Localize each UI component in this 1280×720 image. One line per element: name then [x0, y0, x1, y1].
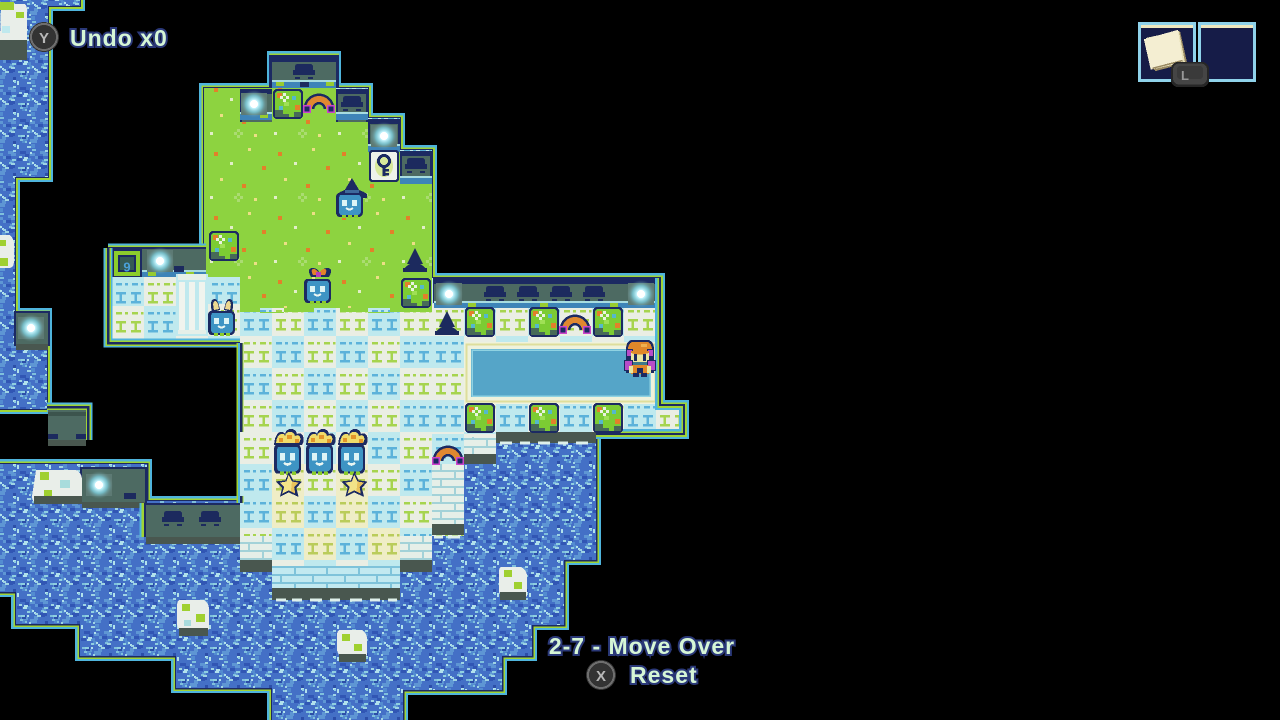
svg-text:2-7 - Move Over: 2-7 - Move Over: [549, 633, 735, 659]
svg-text:9: 9: [123, 259, 130, 274]
svg-text:X: X: [596, 668, 606, 685]
svg-text:L: L: [1181, 68, 1189, 83]
svg-text:Undo x0: Undo x0: [70, 25, 168, 51]
svg-text:Y: Y: [39, 30, 49, 47]
svg-text:Reset: Reset: [630, 662, 698, 688]
